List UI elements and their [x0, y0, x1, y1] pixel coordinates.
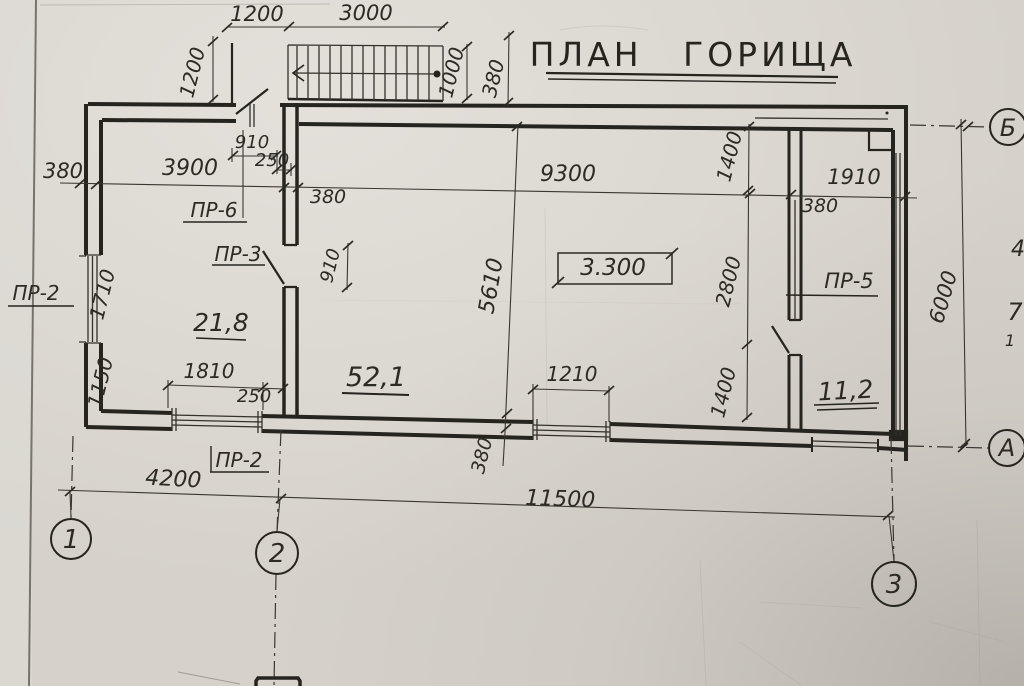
- label-pr5: ПР-5: [824, 269, 873, 293]
- dim-partition-thickness: 380: [310, 186, 346, 208]
- dim-right-wall: 380: [802, 195, 838, 217]
- window-jamb-block: [890, 431, 907, 440]
- axis-label-B: Б: [1000, 114, 1016, 142]
- reference-dot: [886, 112, 889, 115]
- axis-label-1: 1: [63, 525, 80, 555]
- room-large-area: 52,1: [346, 362, 406, 393]
- axis-label-2: 2: [269, 539, 286, 569]
- dim-window1-width: 1810: [184, 359, 235, 383]
- axis-label-A: А: [997, 434, 1015, 462]
- label-pr2-left: ПР-2: [12, 281, 59, 305]
- dim-window1-offset: 250: [237, 386, 271, 407]
- room-small-area: 21,8: [193, 308, 249, 337]
- edge-mark-3: 1: [1005, 331, 1015, 350]
- drawing-title: ПЛАН ГОРИЩА: [530, 35, 857, 74]
- dim-left-wall: 380: [43, 159, 83, 183]
- dim-hall-width: 9300: [540, 162, 596, 187]
- dim-top-stairs: 3000: [339, 1, 392, 25]
- elevation-mark-value: 3.300: [580, 255, 646, 281]
- label-pr6: ПР-6: [190, 198, 237, 222]
- dim-axis-1-3: 11500: [525, 486, 596, 513]
- dim-right-window: 1910: [827, 165, 880, 189]
- dim-door6-offset: 250: [255, 150, 289, 171]
- axis-label-3: 3: [886, 570, 903, 600]
- dim-window2-width: 1210: [547, 362, 598, 386]
- edge-mark-2: 7: [1007, 298, 1023, 326]
- dim-room-small-width: 3900: [162, 156, 218, 181]
- top-wall-outer-left: [88, 104, 236, 105]
- top-wall-inner-left: [102, 120, 236, 121]
- scanned-floor-plan-photo: ПЛАН ГОРИЩА 1200 3000 1200 1000 380 380 …: [0, 0, 1024, 686]
- edge-mark-1: 4: [1011, 237, 1024, 262]
- room-right-area: 11,2: [817, 375, 874, 407]
- label-pr2-bottom: ПР-2: [215, 448, 262, 472]
- label-pr3: ПР-3: [214, 242, 261, 266]
- floor-plan-drawing: ПЛАН ГОРИЩА 1200 3000 1200 1000 380 380 …: [0, 0, 1024, 686]
- dim-top-landing: 1200: [230, 2, 283, 26]
- top-wall-outer-right: [280, 105, 908, 107]
- dim-axis-1-2: 4200: [145, 466, 202, 494]
